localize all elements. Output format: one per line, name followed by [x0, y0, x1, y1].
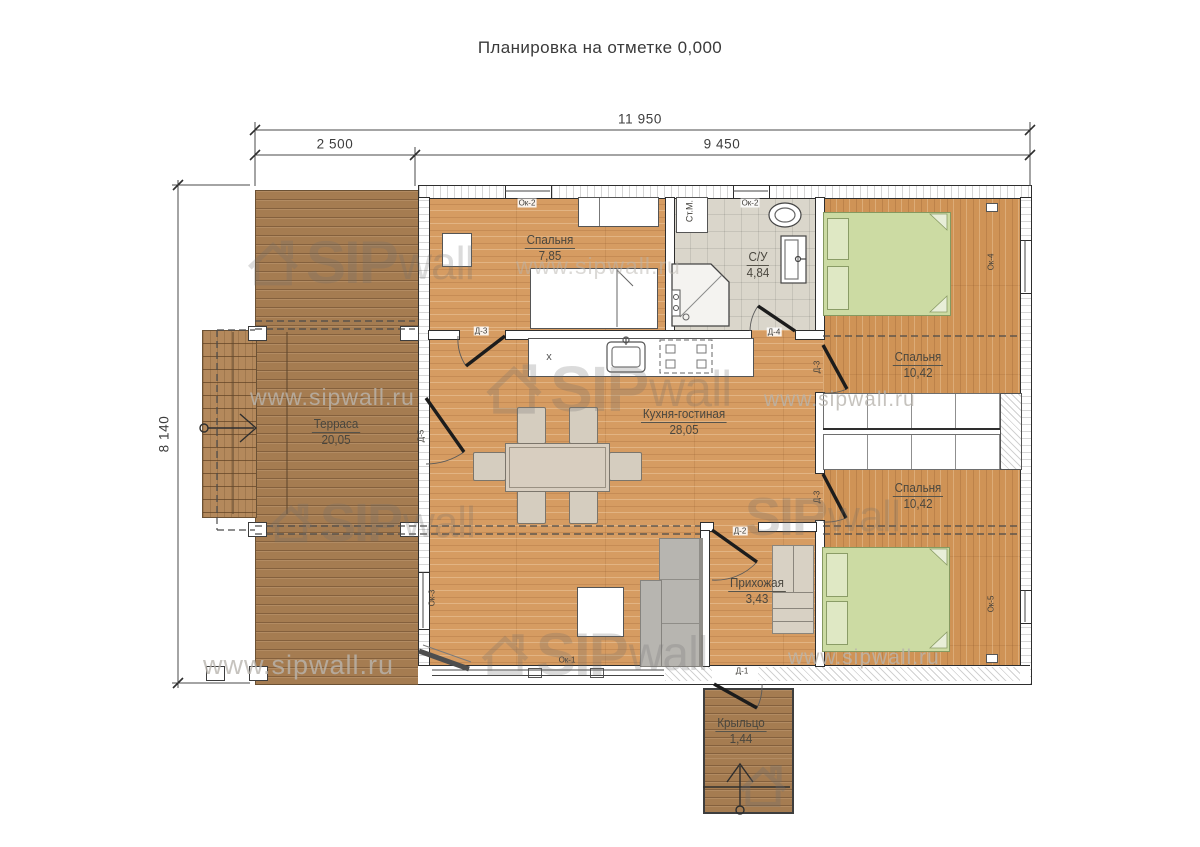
floor-plan: Планировка на отметке 0,000 [0, 0, 1200, 847]
terrace-stairs [202, 330, 257, 518]
dim-height: 8 140 [157, 416, 172, 453]
room-label-terrace: Терраса 20,05 [312, 417, 360, 447]
sofa-seam [660, 579, 699, 580]
chair [569, 407, 598, 444]
closet-shelf [773, 608, 813, 609]
coffee-table [577, 587, 624, 637]
wall-bottom-hatch-right [758, 667, 1020, 681]
window-label-ok3: Ок-3 [428, 589, 437, 608]
door-label-d5: Д-5 [417, 429, 426, 444]
dining-table [505, 443, 610, 492]
sofa [659, 538, 703, 667]
room-label-bedroom2: Спальня 10,42 [893, 350, 943, 380]
window-label-ok2: Ок-2 [518, 199, 537, 208]
page-title: Планировка на отметке 0,000 [0, 38, 1200, 58]
pillow [827, 218, 849, 260]
sofa-chaise [640, 580, 662, 667]
sofa-seam [660, 623, 699, 624]
door-label-d2: Д-2 [733, 527, 748, 536]
wall-bottom-hatch-left [665, 667, 712, 681]
bedroom1-wardrobe [578, 197, 659, 227]
chair [517, 487, 546, 524]
vent-mark [986, 654, 998, 663]
room-label-porch: Крыльцо 1,44 [715, 716, 766, 746]
dim-house-width: 9 450 [704, 137, 741, 152]
kitchen-counter [528, 338, 754, 377]
wardrobe-row-bottom [823, 434, 1002, 470]
window-label-ok1: Ок-1 [558, 656, 577, 665]
dining-table-inner-line [509, 447, 606, 488]
pillow [826, 601, 848, 645]
window-ok5 [1020, 590, 1032, 624]
door-label-d3: Д-3 [813, 360, 822, 375]
window-ok2-bedroom1 [505, 185, 552, 199]
dim-total-width: 11 950 [618, 112, 662, 127]
window-mullion [528, 668, 542, 678]
room-label-bathroom: С/У 4,84 [747, 250, 770, 280]
wall-bedroom1-bathroom [665, 197, 675, 332]
wall-pier-insulation [1000, 393, 1022, 470]
vent-mark [986, 203, 998, 212]
dim-terrace-width: 2 500 [317, 137, 354, 152]
window-mullion [590, 668, 604, 678]
room-label-hallway: Прихожая 3,43 [728, 576, 786, 606]
wall-mid-seg3 [795, 330, 825, 340]
window-label-ok4: Ок-4 [987, 253, 996, 272]
room-label-bedroom3: Спальня 10,42 [893, 481, 943, 511]
window-label-ok5: Ок-5 [987, 595, 996, 614]
bedroom1-desk [442, 233, 472, 267]
chair [609, 452, 642, 481]
roof-post [248, 522, 267, 537]
pillow [827, 266, 849, 310]
bedroom1-bed [530, 268, 658, 329]
closet-shelf [773, 621, 813, 622]
washing-machine-label: Ст.М. [686, 199, 695, 223]
living-room-floor [428, 330, 823, 665]
door-label-d3: Д-3 [813, 490, 822, 505]
roof-post [400, 326, 419, 341]
room-label-bedroom1: Спальня 7,85 [525, 233, 575, 263]
chair [517, 407, 546, 444]
wall-mid-seg1 [428, 330, 460, 340]
chair [569, 487, 598, 524]
door-label-d4: Д-4 [767, 328, 782, 337]
closet-divider [793, 546, 794, 592]
pillow [826, 553, 848, 597]
wardrobe-row-top [823, 393, 1002, 430]
stove-mark: x [546, 351, 552, 363]
door-label-d3: Д-3 [474, 327, 489, 336]
roof-post [248, 326, 267, 341]
room-label-kitchen-living: Кухня-гостиная 28,05 [641, 407, 727, 437]
wall-hall-top-seg2 [758, 522, 817, 532]
wardrobe-divider-line [599, 198, 600, 226]
deck-post [249, 666, 268, 681]
chair [473, 452, 506, 481]
door-label-d1: Д-1 [735, 667, 750, 676]
roof-post [400, 522, 419, 537]
porch-steps [703, 758, 794, 814]
window-ok4 [1020, 240, 1032, 294]
window-ok2-bathroom [733, 185, 770, 199]
deck-post [206, 666, 225, 681]
window-label-ok2: Ок-2 [741, 199, 760, 208]
